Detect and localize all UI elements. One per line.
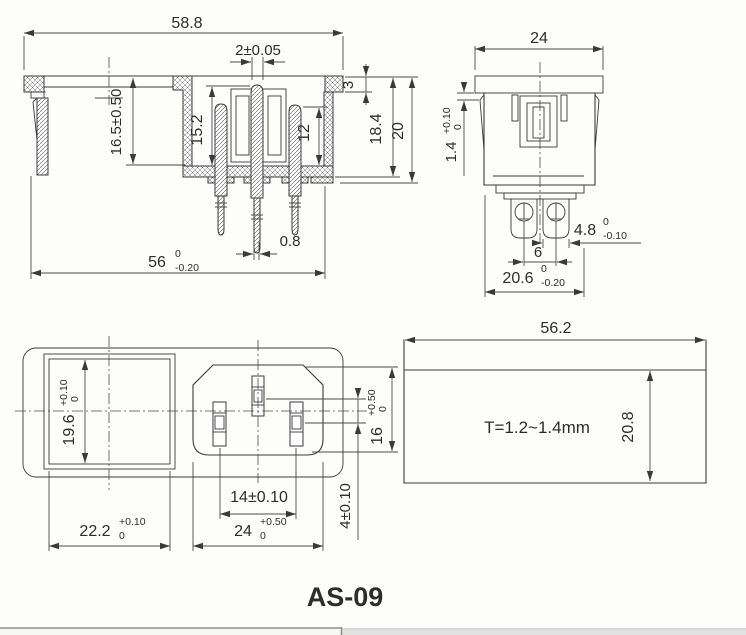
dim-switch-hole-height: 19.6 [61, 414, 78, 445]
dim-terminal-width-tol-dn: -0.10 [603, 230, 627, 242]
dim-body-depth: 18.4 [368, 113, 385, 144]
latch-wing-right [595, 95, 599, 150]
dim-switch-hole-width: 22.2 [79, 523, 110, 540]
dim-mount-depth: 16.5±0.50 [108, 89, 125, 156]
dim-body-width-front-tol-up: 0 [541, 263, 547, 275]
bottom-ui-strip [0, 627, 746, 635]
dim-switch-hole-height-group: 19.6 +0.10 0 [58, 379, 81, 445]
drawing-title: AS-09 [307, 582, 384, 612]
switch-hole-outer [44, 354, 175, 469]
earth-contact-housing [520, 96, 557, 147]
dim-terminal-pitch: 6 [534, 244, 542, 261]
dim-inlet-width-tol-dn: 0 [260, 530, 266, 542]
flange-outline [475, 76, 603, 93]
dim-terminal-width: 4.8 [574, 222, 596, 239]
dim-pin-height-right: 12 [296, 124, 313, 142]
inlet-pin-right [290, 402, 303, 446]
inlet-pin-left [213, 402, 226, 446]
view-side-section: 58.8 2±0.05 3 18.4 20 15.2 12 16.5±0.50 … [24, 15, 418, 279]
dim-body-width-front: 20.6 [502, 270, 533, 287]
dim-latch-gap-group: 1.4 +0.10 0 [441, 107, 464, 162]
dim-switch-hole-width-tol-dn: 0 [119, 530, 125, 542]
dim-body-width-tol-up: 0 [175, 248, 181, 260]
cavity-right-wall [324, 92, 333, 166]
dim-flange-width: 24 [530, 30, 548, 47]
dim-inlet-width-tol-up: +0.50 [260, 516, 287, 528]
dim-cutout-width: 56.2 [540, 320, 571, 337]
dim-flange-thickness: 3 [340, 81, 357, 89]
dim-total-depth: 20 [390, 122, 407, 140]
dim-latch-gap-tol-dn: 0 [452, 124, 464, 130]
switch-hole-inner [49, 359, 170, 464]
view-front-section: 24 1.4 +0.10 0 4.8 0 -0.10 6 20.6 0 -0.2… [441, 30, 641, 297]
view-face: 19.6 +0.10 0 22.2 +0.10 0 14±0.10 24 +0.… [15, 336, 398, 551]
dim-pin-height-center: 15.2 [189, 114, 206, 145]
dim-switch-hole-height-tol-dn: 0 [69, 396, 81, 402]
technical-drawing-page: 58.8 2±0.05 3 18.4 20 15.2 12 16.5±0.50 … [0, 0, 746, 635]
pin-left-section [215, 104, 227, 235]
dim-inlet-width: 24 [234, 523, 252, 540]
dim-earth-pin-offset: 4±0.10 [337, 483, 354, 529]
strip-left [0, 629, 341, 635]
dim-overall-width: 58.8 [171, 15, 202, 32]
dim-pin-width-top: 2±0.05 [235, 42, 281, 59]
left-flange-section [24, 76, 44, 92]
left-leg-section [37, 98, 48, 175]
dim-switch-hole-width-tol-up: +0.10 [119, 516, 146, 528]
panel-thickness-note: T=1.2~1.4mm [484, 418, 590, 437]
dim-inlet-height-group: 16 +0.50 0 [366, 389, 389, 445]
latch-wing-left [480, 95, 484, 150]
as09-drawing: 58.8 2±0.05 3 18.4 20 15.2 12 16.5±0.50 … [0, 0, 746, 635]
dim-cutout-height: 20.8 [620, 411, 637, 442]
dim-latch-gap: 1.4 [443, 142, 460, 163]
dim-inlet-height-tol-dn: 0 [377, 406, 389, 412]
dim-body-width: 56 [148, 254, 166, 271]
dim-terminal-width-tol-up: 0 [603, 216, 609, 228]
dim-inlet-height: 16 [369, 427, 386, 445]
dim-body-width-tol-dn: -0.20 [175, 262, 199, 274]
view-panel-cutout: 56.2 20.8 T=1.2~1.4mm [404, 320, 706, 483]
pin-center-section [251, 85, 263, 253]
dim-pin-tip-width: 0.8 [280, 233, 301, 250]
dim-pin-pitch: 14±0.10 [230, 489, 288, 506]
dim-body-width-front-tol-dn: -0.20 [541, 277, 565, 289]
